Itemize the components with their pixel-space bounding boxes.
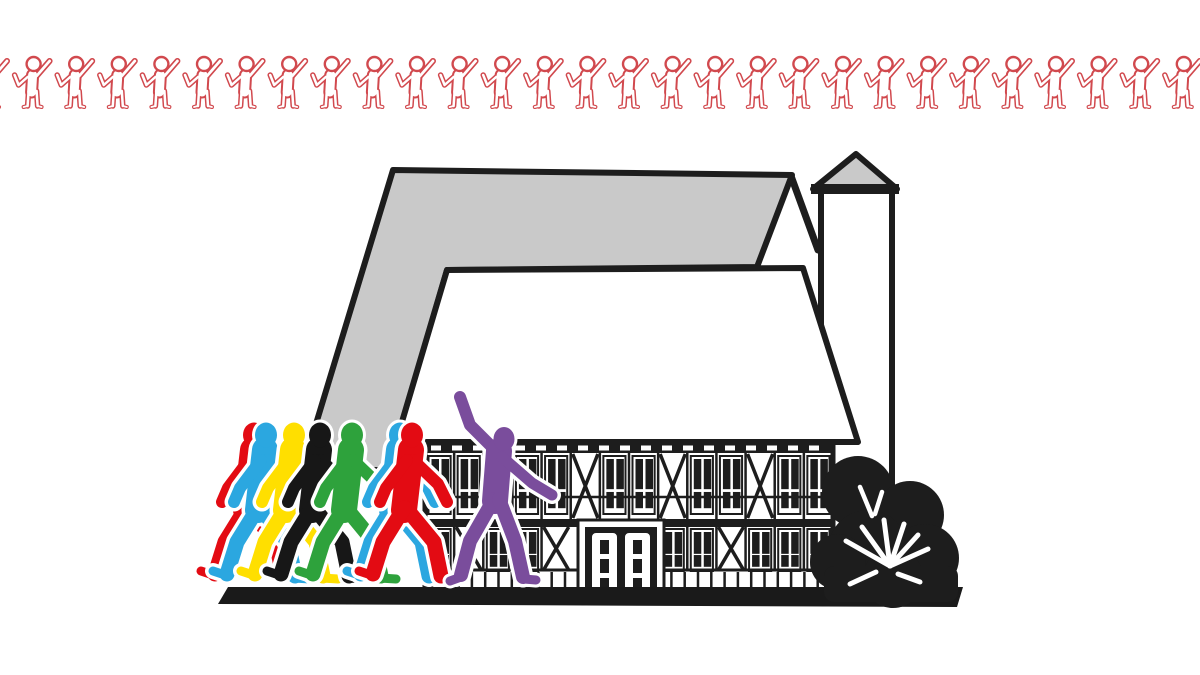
cheering-figure	[313, 57, 348, 107]
cheering-figure	[739, 57, 774, 107]
cheering-figure	[100, 57, 135, 107]
cheering-figure	[654, 57, 689, 107]
cheering-figure	[994, 57, 1029, 107]
cheering-figure	[781, 57, 816, 107]
cheering-figure	[142, 57, 177, 107]
cheering-figure	[398, 57, 433, 107]
illustration-canvas	[0, 0, 1200, 675]
window	[778, 529, 800, 571]
cheering-figure	[1165, 57, 1200, 107]
cheering-figure	[0, 57, 7, 107]
tower-cap	[813, 154, 897, 189]
window	[603, 456, 625, 514]
logo-illustration	[0, 0, 1200, 675]
cheering-figure	[696, 57, 731, 107]
cheering-figure	[57, 57, 92, 107]
cheering-figure	[185, 57, 220, 107]
window	[691, 529, 713, 571]
red-figures-border	[0, 57, 1200, 107]
cheering-figure	[1037, 57, 1072, 107]
bush	[810, 456, 959, 608]
cheering-figure	[611, 57, 646, 107]
cheering-figure	[568, 57, 603, 107]
window	[633, 456, 655, 514]
cheering-figure	[483, 57, 518, 107]
walking-people-group	[201, 420, 456, 580]
cheering-figure	[15, 57, 50, 107]
window	[778, 456, 800, 514]
cheering-figure	[355, 57, 390, 107]
cheering-figure	[270, 57, 305, 107]
cheering-figure	[228, 57, 263, 107]
cheering-figure	[1080, 57, 1115, 107]
cheering-figure	[1122, 57, 1157, 107]
cheering-figure	[441, 57, 476, 107]
window	[691, 456, 713, 514]
window	[720, 456, 742, 514]
cheering-figure	[952, 57, 987, 107]
window	[458, 456, 480, 514]
cheering-figure	[909, 57, 944, 107]
cheering-figure	[867, 57, 902, 107]
window	[749, 529, 771, 571]
cheering-figure	[824, 57, 859, 107]
cheering-figure	[526, 57, 561, 107]
tower-cap-base	[811, 184, 899, 194]
